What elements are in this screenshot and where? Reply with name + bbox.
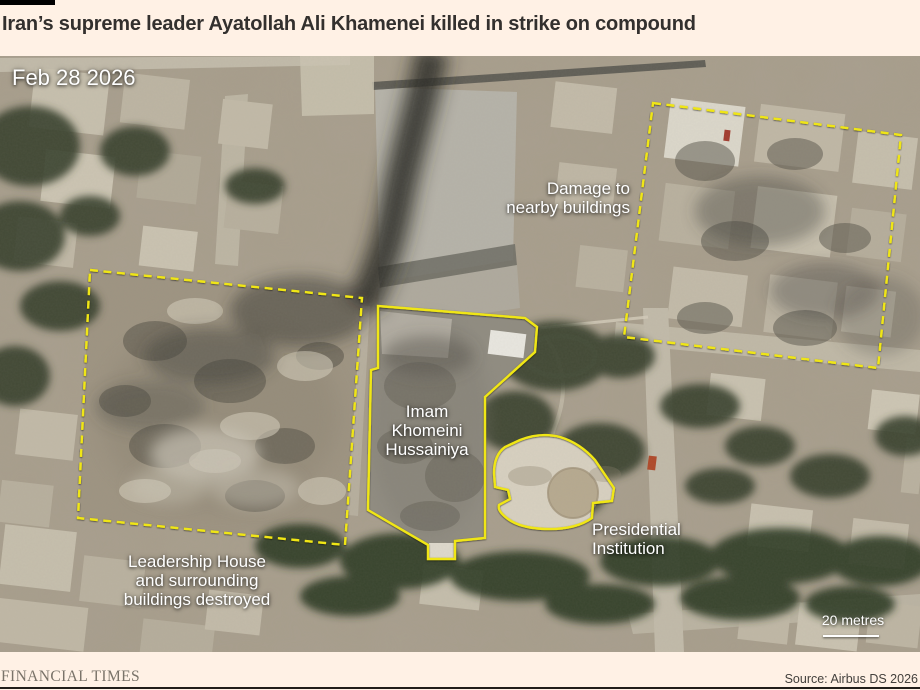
damage-label: Damage to nearby buildings bbox=[506, 179, 630, 217]
ft-wordmark: FINANCIAL TIMES bbox=[1, 668, 140, 686]
presidential-label: Presidential Institution bbox=[592, 520, 681, 558]
bottom-rule bbox=[0, 687, 920, 689]
ft-graphic-page: Iran’s supreme leader Ayatollah Ali Kham… bbox=[0, 0, 920, 690]
date-label: Feb 28 2026 bbox=[12, 66, 136, 91]
hussainiya-label: Imam Khomeini Hussainiya bbox=[385, 402, 468, 460]
satellite-map: Feb 28 2026 Damage to nearby buildings I… bbox=[0, 56, 920, 652]
headline: Iran’s supreme leader Ayatollah Ali Kham… bbox=[2, 13, 902, 36]
presidential-outline bbox=[494, 435, 614, 529]
headline-tick bbox=[0, 0, 55, 5]
scale-bar-line bbox=[823, 635, 879, 637]
source-credit: Source: Airbus DS 2026 bbox=[785, 672, 918, 686]
damage-outline bbox=[624, 103, 901, 368]
leadership-label: Leadership House and surrounding buildin… bbox=[124, 552, 270, 610]
leadership-outline bbox=[78, 270, 362, 545]
scale-label: 20 metres bbox=[800, 612, 906, 628]
